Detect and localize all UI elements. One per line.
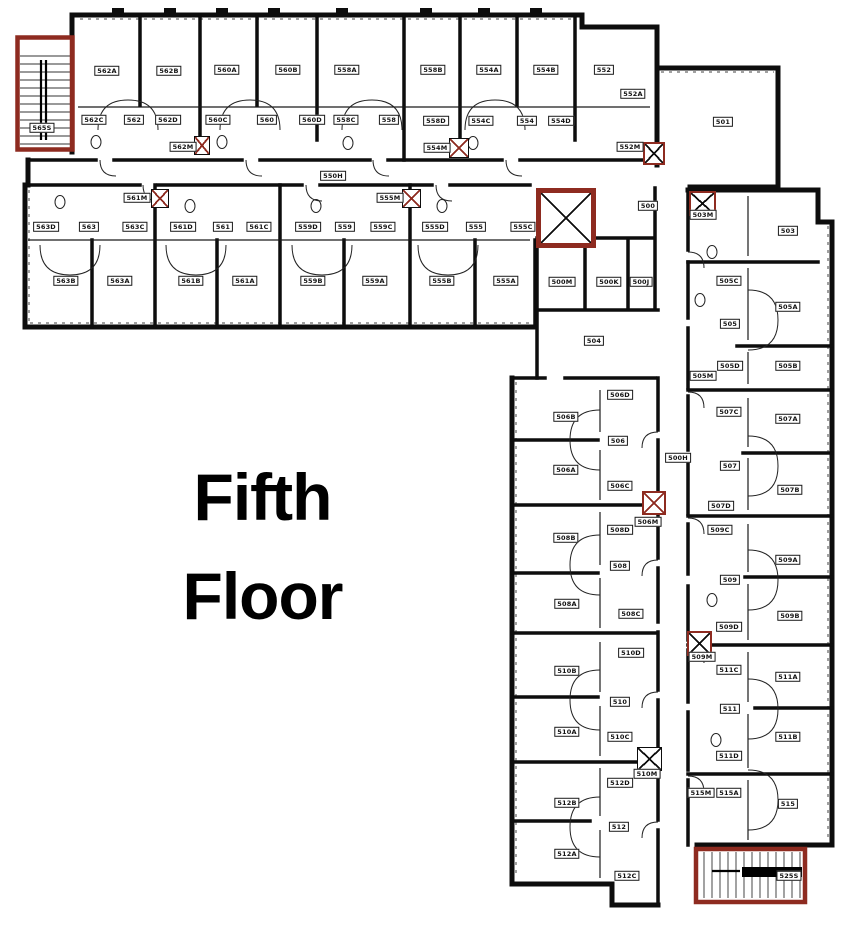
room-label-500K: 500K xyxy=(596,277,621,287)
room-label-508D: 508D xyxy=(607,525,633,535)
room-label-558B: 558B xyxy=(420,65,445,75)
elevator-icon xyxy=(536,188,596,248)
floor-title-line1: Fifth xyxy=(150,448,375,547)
room-label-505B: 505B xyxy=(775,361,800,371)
room-label-562C: 562C xyxy=(81,115,106,125)
room-label-510B: 510B xyxy=(554,666,579,676)
room-label-506M: 506M xyxy=(635,517,662,527)
room-label-500: 500 xyxy=(638,201,658,211)
room-label-505A: 505A xyxy=(775,302,800,312)
room-label-507C: 507C xyxy=(716,407,741,417)
room-label-555D: 555D xyxy=(422,222,448,232)
room-label-510A: 510A xyxy=(554,727,579,737)
room-label-562D: 562D xyxy=(155,115,181,125)
room-label-509C: 509C xyxy=(707,525,732,535)
room-label-562M: 562M xyxy=(170,142,197,152)
room-label-506: 506 xyxy=(608,436,628,446)
trash-chute-icon xyxy=(642,491,666,515)
room-label-560A: 560A xyxy=(214,65,239,75)
room-label-559: 559 xyxy=(335,222,355,232)
elevator-icon xyxy=(637,747,662,771)
room-label-508: 508 xyxy=(610,561,630,571)
room-label-515A: 515A xyxy=(716,788,741,798)
room-label-552A: 552A xyxy=(620,89,645,99)
room-label-508C: 508C xyxy=(618,609,643,619)
room-label-561D: 561D xyxy=(170,222,196,232)
room-label-555B: 555B xyxy=(429,276,454,286)
room-label-554A: 554A xyxy=(476,65,501,75)
room-label-510M: 510M xyxy=(634,769,661,779)
room-label-509D: 509D xyxy=(716,622,742,632)
room-label-505: 505 xyxy=(720,319,740,329)
room-label-507D: 507D xyxy=(708,501,734,511)
floor-title: Fifth Floor xyxy=(150,448,375,646)
room-label-558C: 558C xyxy=(333,115,358,125)
room-label-507: 507 xyxy=(720,461,740,471)
room-label-509M: 509M xyxy=(689,652,716,662)
room-label-561M: 561M xyxy=(124,193,151,203)
room-label-512A: 512A xyxy=(554,849,579,859)
room-label-507A: 507A xyxy=(775,414,800,424)
room-label-563A: 563A xyxy=(107,276,132,286)
trash-chute-icon xyxy=(643,142,665,165)
room-label-503M: 503M xyxy=(690,210,717,220)
room-label-511C: 511C xyxy=(716,665,741,675)
room-label-511D: 511D xyxy=(716,751,742,761)
room-label-511A: 511A xyxy=(775,672,800,682)
room-label-561: 561 xyxy=(213,222,233,232)
room-label-512B: 512B xyxy=(554,798,579,808)
room-label-552M: 552M xyxy=(617,142,644,152)
room-label-554: 554 xyxy=(517,116,537,126)
room-label-563B: 563B xyxy=(53,276,78,286)
room-label-500J: 500J xyxy=(630,277,653,287)
room-label-559D: 559D xyxy=(295,222,321,232)
room-label-555M: 555M xyxy=(377,193,404,203)
room-label-500H: 500H xyxy=(665,453,691,463)
room-label-506C: 506C xyxy=(607,481,632,491)
room-label-560: 560 xyxy=(257,115,277,125)
floor-plan: 565S562A562B560A560B558A558B554A554B5525… xyxy=(0,0,851,927)
room-label-501: 501 xyxy=(713,117,733,127)
room-label-504: 504 xyxy=(584,336,604,346)
room-label-555C: 555C xyxy=(510,222,535,232)
room-label-506A: 506A xyxy=(553,465,578,475)
room-label-500M: 500M xyxy=(549,277,576,287)
room-label-561A: 561A xyxy=(232,276,257,286)
room-label-506D: 506D xyxy=(607,390,633,400)
room-label-563D: 563D xyxy=(33,222,59,232)
room-label-515: 515 xyxy=(778,799,798,809)
floor-title-line2: Floor xyxy=(150,547,375,646)
room-label-560B: 560B xyxy=(275,65,300,75)
room-label-511B: 511B xyxy=(775,732,800,742)
room-label-562A: 562A xyxy=(94,66,119,76)
room-label-555: 555 xyxy=(466,222,486,232)
room-label-559A: 559A xyxy=(362,276,387,286)
room-label-510: 510 xyxy=(610,697,630,707)
room-label-559C: 559C xyxy=(370,222,395,232)
room-label-565S: 565S xyxy=(29,123,54,133)
trash-chute-icon xyxy=(402,189,421,208)
room-label-550H: 550H xyxy=(320,171,346,181)
room-label-512D: 512D xyxy=(607,778,633,788)
room-label-558: 558 xyxy=(379,115,399,125)
room-label-552: 552 xyxy=(594,65,614,75)
room-label-563: 563 xyxy=(79,222,99,232)
room-label-554B: 554B xyxy=(533,65,558,75)
room-label-505C: 505C xyxy=(716,276,741,286)
room-label-507B: 507B xyxy=(777,485,802,495)
room-label-509: 509 xyxy=(720,575,740,585)
room-label-561C: 561C xyxy=(246,222,271,232)
room-label-512: 512 xyxy=(609,822,629,832)
room-label-503: 503 xyxy=(778,226,798,236)
room-label-562: 562 xyxy=(124,115,144,125)
room-label-525S: 525S xyxy=(776,871,801,881)
room-label-511: 511 xyxy=(720,704,740,714)
room-label-562B: 562B xyxy=(156,66,181,76)
room-label-554D: 554D xyxy=(548,116,574,126)
trash-chute-icon xyxy=(449,138,469,158)
room-label-510C: 510C xyxy=(607,732,632,742)
room-label-555A: 555A xyxy=(493,276,518,286)
room-label-559B: 559B xyxy=(300,276,325,286)
room-label-510D: 510D xyxy=(618,648,644,658)
room-label-560C: 560C xyxy=(205,115,230,125)
room-label-563C: 563C xyxy=(122,222,147,232)
room-label-508B: 508B xyxy=(553,533,578,543)
room-label-506B: 506B xyxy=(553,412,578,422)
room-label-554M: 554M xyxy=(424,143,451,153)
room-label-509A: 509A xyxy=(775,555,800,565)
room-label-512C: 512C xyxy=(614,871,639,881)
room-label-560D: 560D xyxy=(299,115,325,125)
room-label-505D: 505D xyxy=(717,361,743,371)
room-label-505M: 505M xyxy=(690,371,717,381)
room-label-554C: 554C xyxy=(468,116,493,126)
trash-chute-icon xyxy=(151,189,169,208)
room-label-508A: 508A xyxy=(554,599,579,609)
room-label-561B: 561B xyxy=(178,276,203,286)
room-label-558D: 558D xyxy=(423,116,449,126)
room-label-515M: 515M xyxy=(688,788,715,798)
room-label-558A: 558A xyxy=(334,65,359,75)
room-label-509B: 509B xyxy=(777,611,802,621)
